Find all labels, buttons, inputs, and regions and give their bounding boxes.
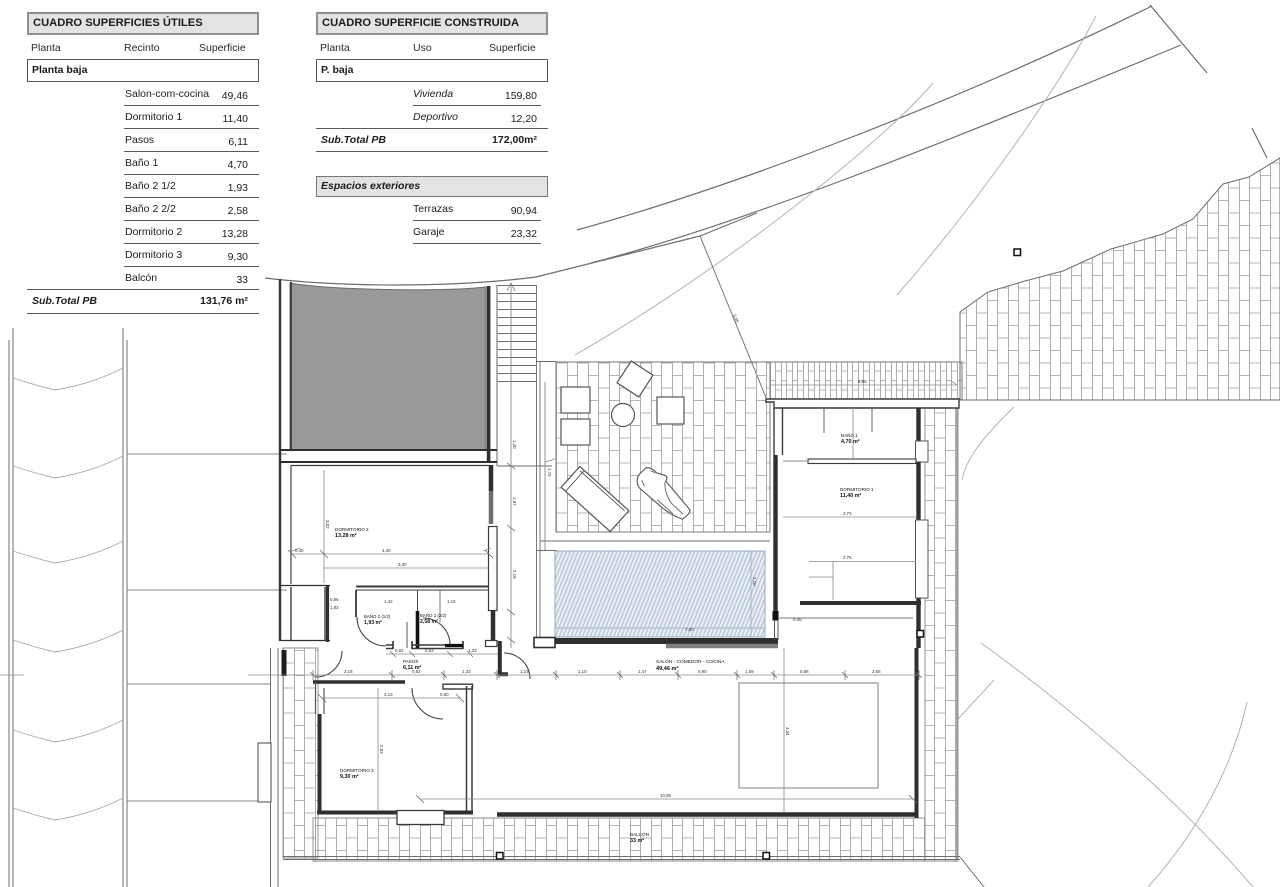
- svg-text:0,82: 0,82: [412, 669, 421, 674]
- svg-text:7,80: 7,80: [685, 627, 694, 632]
- svg-text:0,86: 0,86: [330, 597, 339, 602]
- svg-text:2,75: 2,75: [843, 555, 852, 560]
- svg-text:3,30: 3,30: [398, 562, 407, 567]
- svg-text:49,46 m²: 49,46 m²: [656, 665, 679, 672]
- svg-text:10,85: 10,85: [660, 793, 672, 798]
- svg-text:3,13: 3,13: [384, 692, 393, 697]
- svg-text:1,33: 1,33: [462, 669, 471, 674]
- svg-text:PASOS: PASOS: [403, 659, 419, 664]
- svg-text:0,86: 0,86: [800, 669, 809, 674]
- svg-text:13,28 m²: 13,28 m²: [335, 533, 357, 539]
- svg-text:2,16: 2,16: [344, 669, 353, 674]
- svg-text:1,92: 1,92: [330, 605, 339, 610]
- svg-text:4,40: 4,40: [382, 548, 391, 553]
- svg-text:0,62: 0,62: [395, 648, 404, 653]
- svg-text:9,30 m²: 9,30 m²: [340, 774, 359, 780]
- svg-text:BAÑO 1: BAÑO 1: [841, 432, 858, 438]
- svg-text:4,70 m²: 4,70 m²: [841, 439, 860, 445]
- svg-text:1,10: 1,10: [578, 669, 587, 674]
- svg-text:2,83: 2,83: [379, 745, 384, 754]
- svg-text:1,23: 1,23: [520, 669, 529, 674]
- svg-text:2,18: 2,18: [512, 570, 517, 579]
- svg-text:DORMITORIO 2: DORMITORIO 2: [335, 527, 369, 532]
- svg-text:0,80: 0,80: [440, 692, 449, 697]
- svg-text:11,40 m²: 11,40 m²: [840, 493, 861, 499]
- svg-text:33 m²: 33 m²: [630, 838, 644, 844]
- svg-text:1,47: 1,47: [638, 669, 647, 674]
- svg-text:1,93 m²: 1,93 m²: [364, 620, 382, 626]
- svg-text:3,02: 3,02: [325, 520, 330, 529]
- svg-text:1,40: 1,40: [512, 440, 517, 449]
- svg-text:2,58 m²: 2,58 m²: [420, 619, 438, 625]
- svg-text:1,16: 1,16: [447, 599, 456, 604]
- svg-text:DORMITORIO 3: DORMITORIO 3: [340, 768, 374, 773]
- svg-text:4,34: 4,34: [785, 727, 790, 736]
- svg-text:BAÑO 2 (2/2): BAÑO 2 (2/2): [420, 613, 447, 618]
- svg-text:0,63: 0,63: [425, 648, 434, 653]
- svg-text:0,40: 0,40: [295, 548, 304, 553]
- svg-text:3,65: 3,65: [872, 669, 881, 674]
- svg-text:1,75: 1,75: [547, 468, 552, 477]
- svg-text:BAÑO 2 (1/2): BAÑO 2 (1/2): [364, 614, 391, 619]
- svg-text:BALCÓN: BALCÓN: [630, 831, 649, 837]
- svg-text:SALÓN - COMEDOR - COCINA: SALÓN - COMEDOR - COCINA: [656, 658, 725, 665]
- svg-text:1,59: 1,59: [745, 669, 754, 674]
- svg-text:2,73: 2,73: [843, 511, 852, 516]
- svg-text:DORMITORIO 1: DORMITORIO 1: [840, 487, 874, 492]
- svg-text:0,46: 0,46: [793, 617, 802, 622]
- svg-text:2,10: 2,10: [752, 577, 757, 586]
- svg-text:0,90: 0,90: [698, 669, 707, 674]
- svg-text:5,95: 5,95: [858, 379, 867, 384]
- svg-text:1,97: 1,97: [512, 497, 517, 506]
- svg-text:1,33: 1,33: [468, 648, 477, 653]
- svg-text:1,42: 1,42: [384, 599, 393, 604]
